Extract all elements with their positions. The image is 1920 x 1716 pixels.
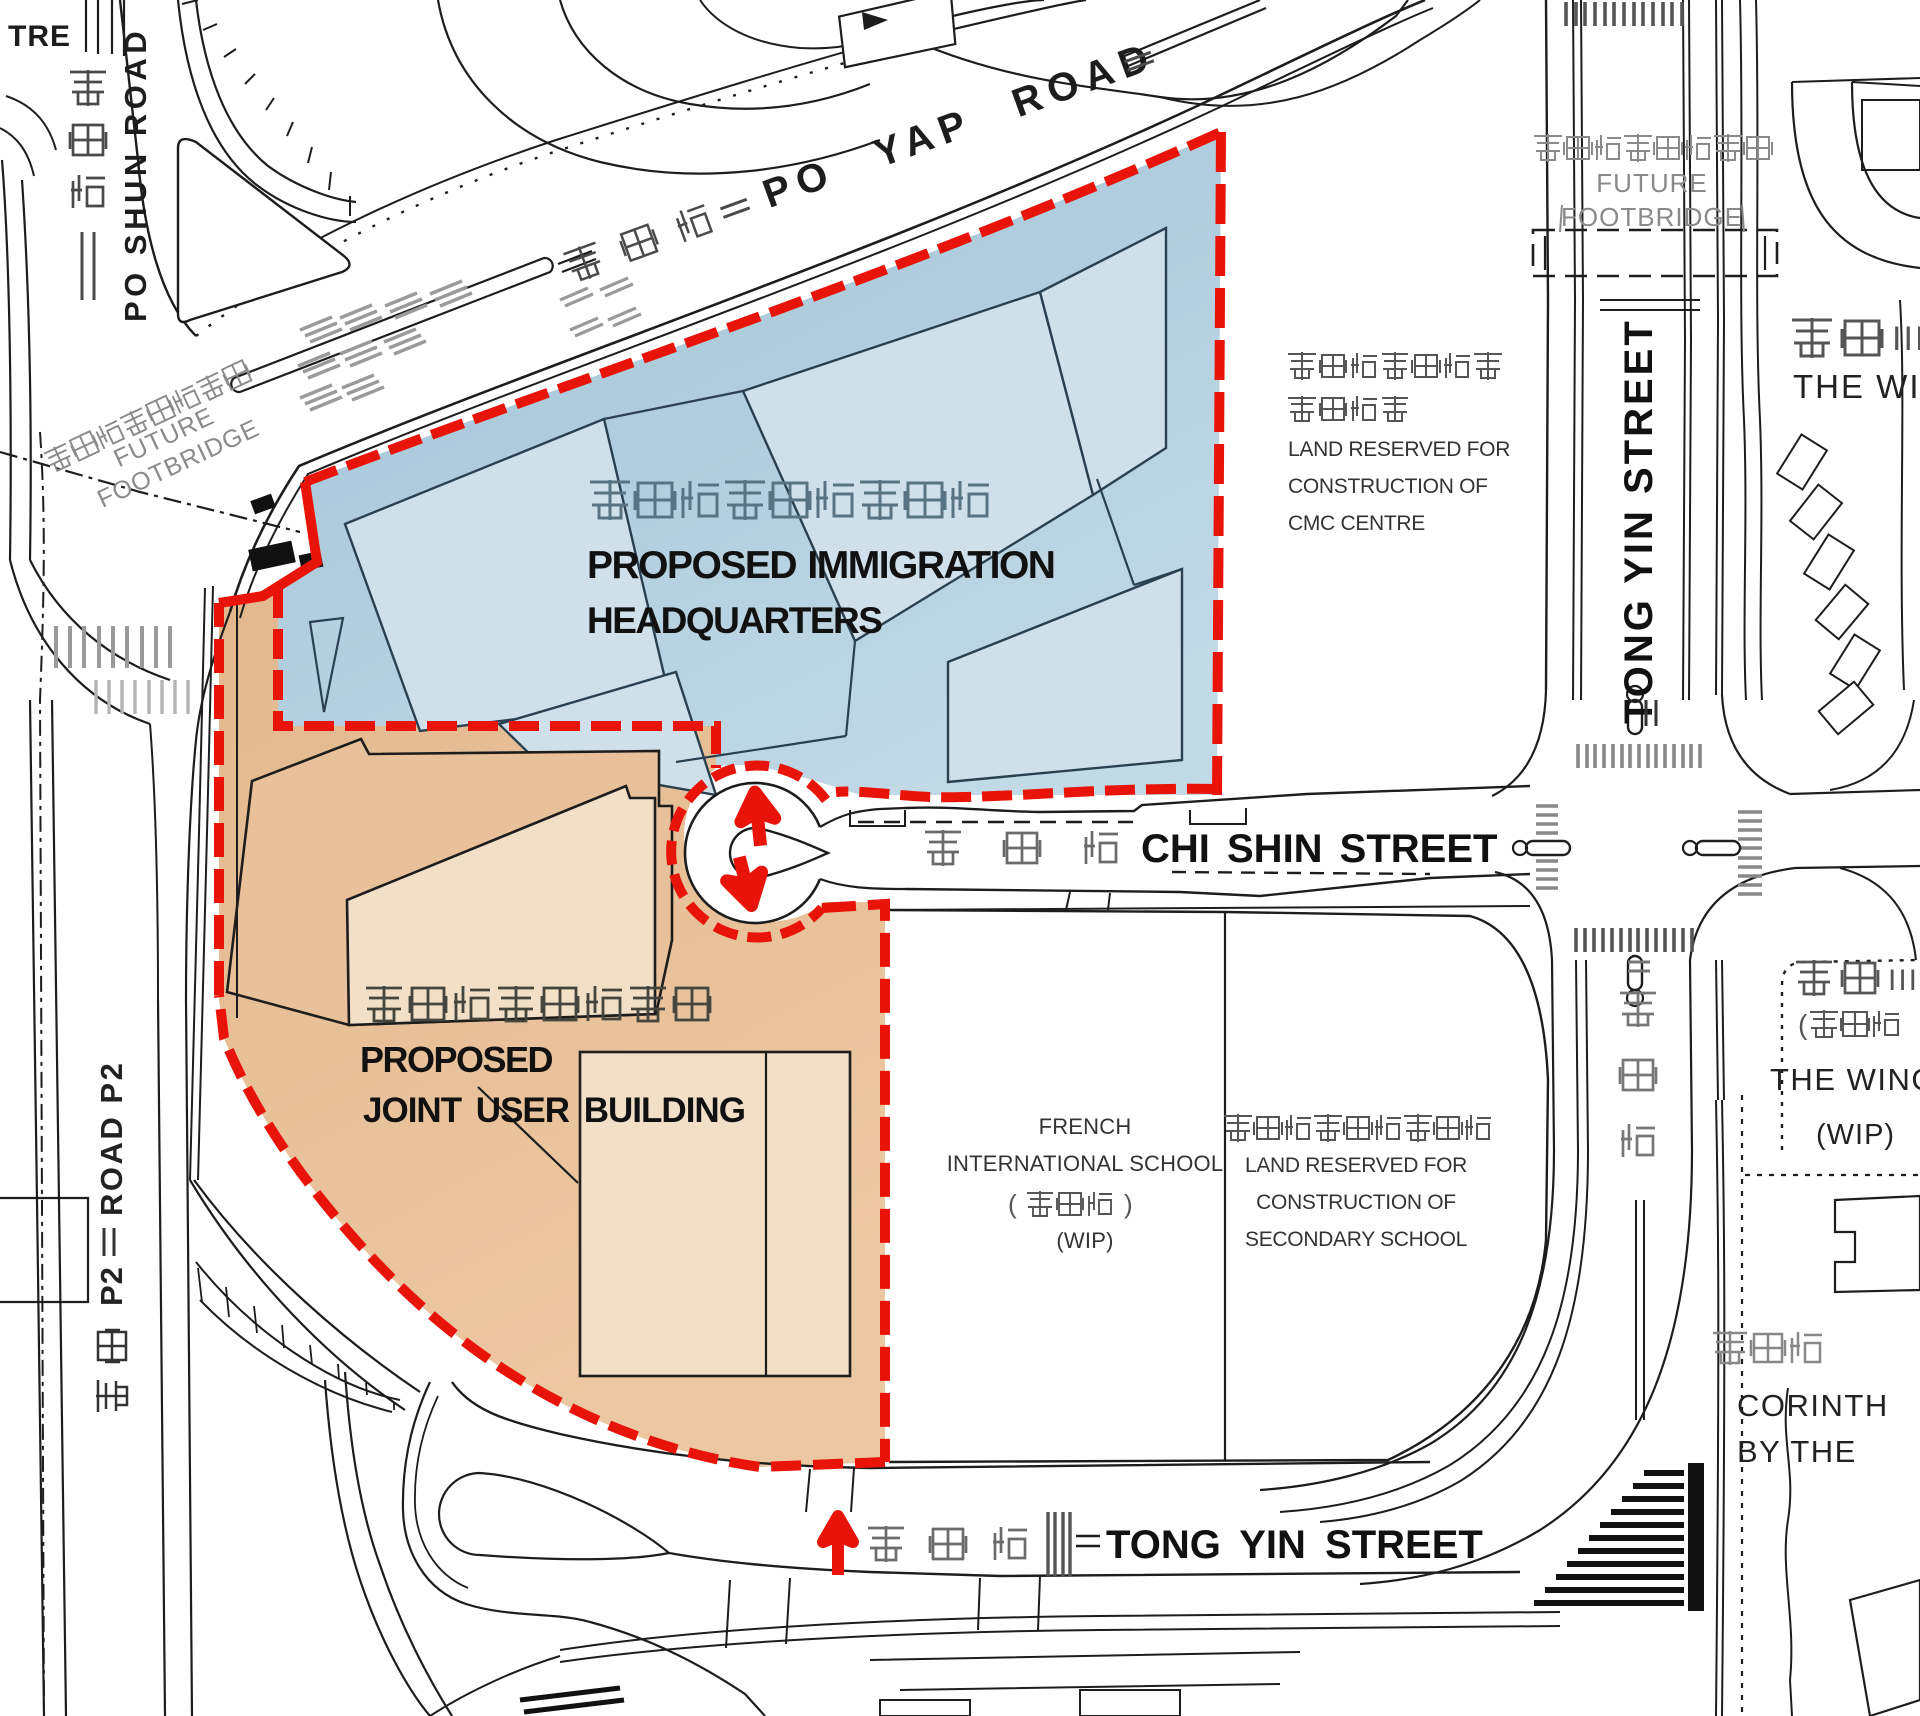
svg-text:TONG YIN STREET: TONG YIN STREET	[1106, 1523, 1483, 1567]
svg-text:CORINTH: CORINTH	[1737, 1388, 1889, 1423]
svg-text:(: (	[1008, 1189, 1017, 1219]
svg-text:TONG YIN STREET: TONG YIN STREET	[1617, 318, 1661, 724]
svg-text:BY THE: BY THE	[1737, 1434, 1857, 1469]
svg-text:(WIP): (WIP)	[1816, 1119, 1895, 1151]
svg-text:LAND RESERVED FOR: LAND RESERVED FOR	[1245, 1154, 1467, 1177]
svg-text:TRE: TRE	[8, 20, 71, 53]
svg-text:FUTURE: FUTURE	[1596, 168, 1707, 198]
svg-text:(: (	[1798, 1009, 1808, 1040]
svg-text:THE WINGS: THE WINGS	[1793, 368, 1920, 405]
svg-text:CMC CENTRE: CMC CENTRE	[1288, 512, 1425, 535]
svg-text:CONSTRUCTION OF: CONSTRUCTION OF	[1256, 1191, 1456, 1214]
svg-text:INTERNATIONAL SCHOOL: INTERNATIONAL SCHOOL	[947, 1151, 1224, 1176]
svg-text:LAND RESERVED FOR: LAND RESERVED FOR	[1288, 438, 1510, 461]
svg-text:ROAD P2: ROAD P2	[94, 1061, 129, 1216]
svg-text:PO SHUN ROAD: PO SHUN ROAD	[118, 27, 153, 322]
svg-text:SECONDARY SCHOOL: SECONDARY SCHOOL	[1245, 1228, 1467, 1251]
svg-text:(WIP): (WIP)	[1056, 1228, 1113, 1253]
svg-text:III: III	[1892, 320, 1920, 358]
svg-text:III: III	[1888, 964, 1919, 997]
svg-text:PROPOSED IMMIGRATION: PROPOSED IMMIGRATION	[587, 544, 1054, 587]
svg-text:CONSTRUCTION OF: CONSTRUCTION OF	[1288, 475, 1488, 498]
svg-text:CHI SHIN STREET: CHI SHIN STREET	[1141, 827, 1497, 871]
svg-text:FOOTBRIDGE: FOOTBRIDGE	[1561, 202, 1743, 232]
svg-text:): )	[1124, 1189, 1133, 1219]
svg-text:FRENCH: FRENCH	[1039, 1114, 1132, 1139]
svg-text:THE WINGS: THE WINGS	[1770, 1062, 1920, 1097]
svg-text:JOINT USER BUILDING: JOINT USER BUILDING	[363, 1091, 745, 1130]
svg-text:HEADQUARTERS: HEADQUARTERS	[587, 600, 882, 641]
svg-text:PROPOSED: PROPOSED	[360, 1039, 553, 1080]
svg-text:P2: P2	[94, 1266, 129, 1306]
